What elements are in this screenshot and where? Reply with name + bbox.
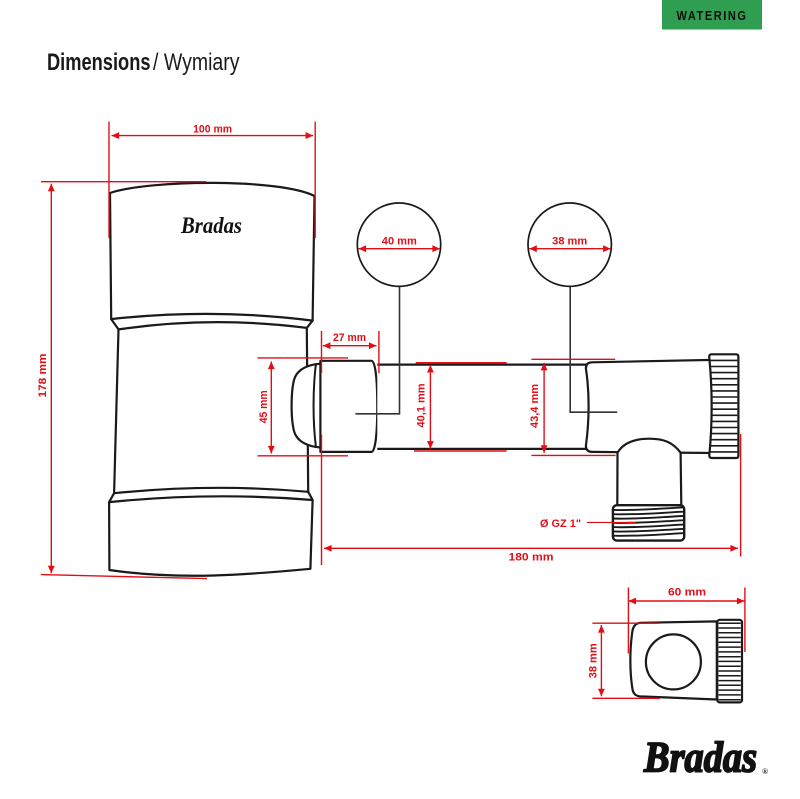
- svg-text:®: ®: [762, 767, 768, 776]
- svg-text:40 mm: 40 mm: [382, 235, 417, 247]
- svg-text:40,1 mm: 40,1 mm: [415, 383, 427, 427]
- svg-text:100 mm: 100 mm: [193, 123, 232, 135]
- svg-text:60 mm: 60 mm: [668, 586, 706, 598]
- svg-text:27 mm: 27 mm: [333, 332, 366, 344]
- svg-text:Ø GZ 1": Ø GZ 1": [540, 518, 581, 530]
- svg-text:Bradas: Bradas: [180, 213, 242, 238]
- svg-text:WATERING: WATERING: [677, 8, 748, 23]
- svg-text:Bradas: Bradas: [643, 735, 757, 782]
- svg-text:38 mm: 38 mm: [588, 643, 600, 678]
- svg-text:43,4 mm: 43,4 mm: [529, 384, 541, 428]
- svg-text:178 mm: 178 mm: [37, 353, 49, 397]
- svg-text:38 mm: 38 mm: [552, 235, 587, 247]
- svg-text:Dimensions/ Wymiary: Dimensions/ Wymiary: [47, 49, 240, 76]
- svg-text:180 mm: 180 mm: [509, 551, 554, 563]
- svg-text:45 mm: 45 mm: [258, 390, 270, 423]
